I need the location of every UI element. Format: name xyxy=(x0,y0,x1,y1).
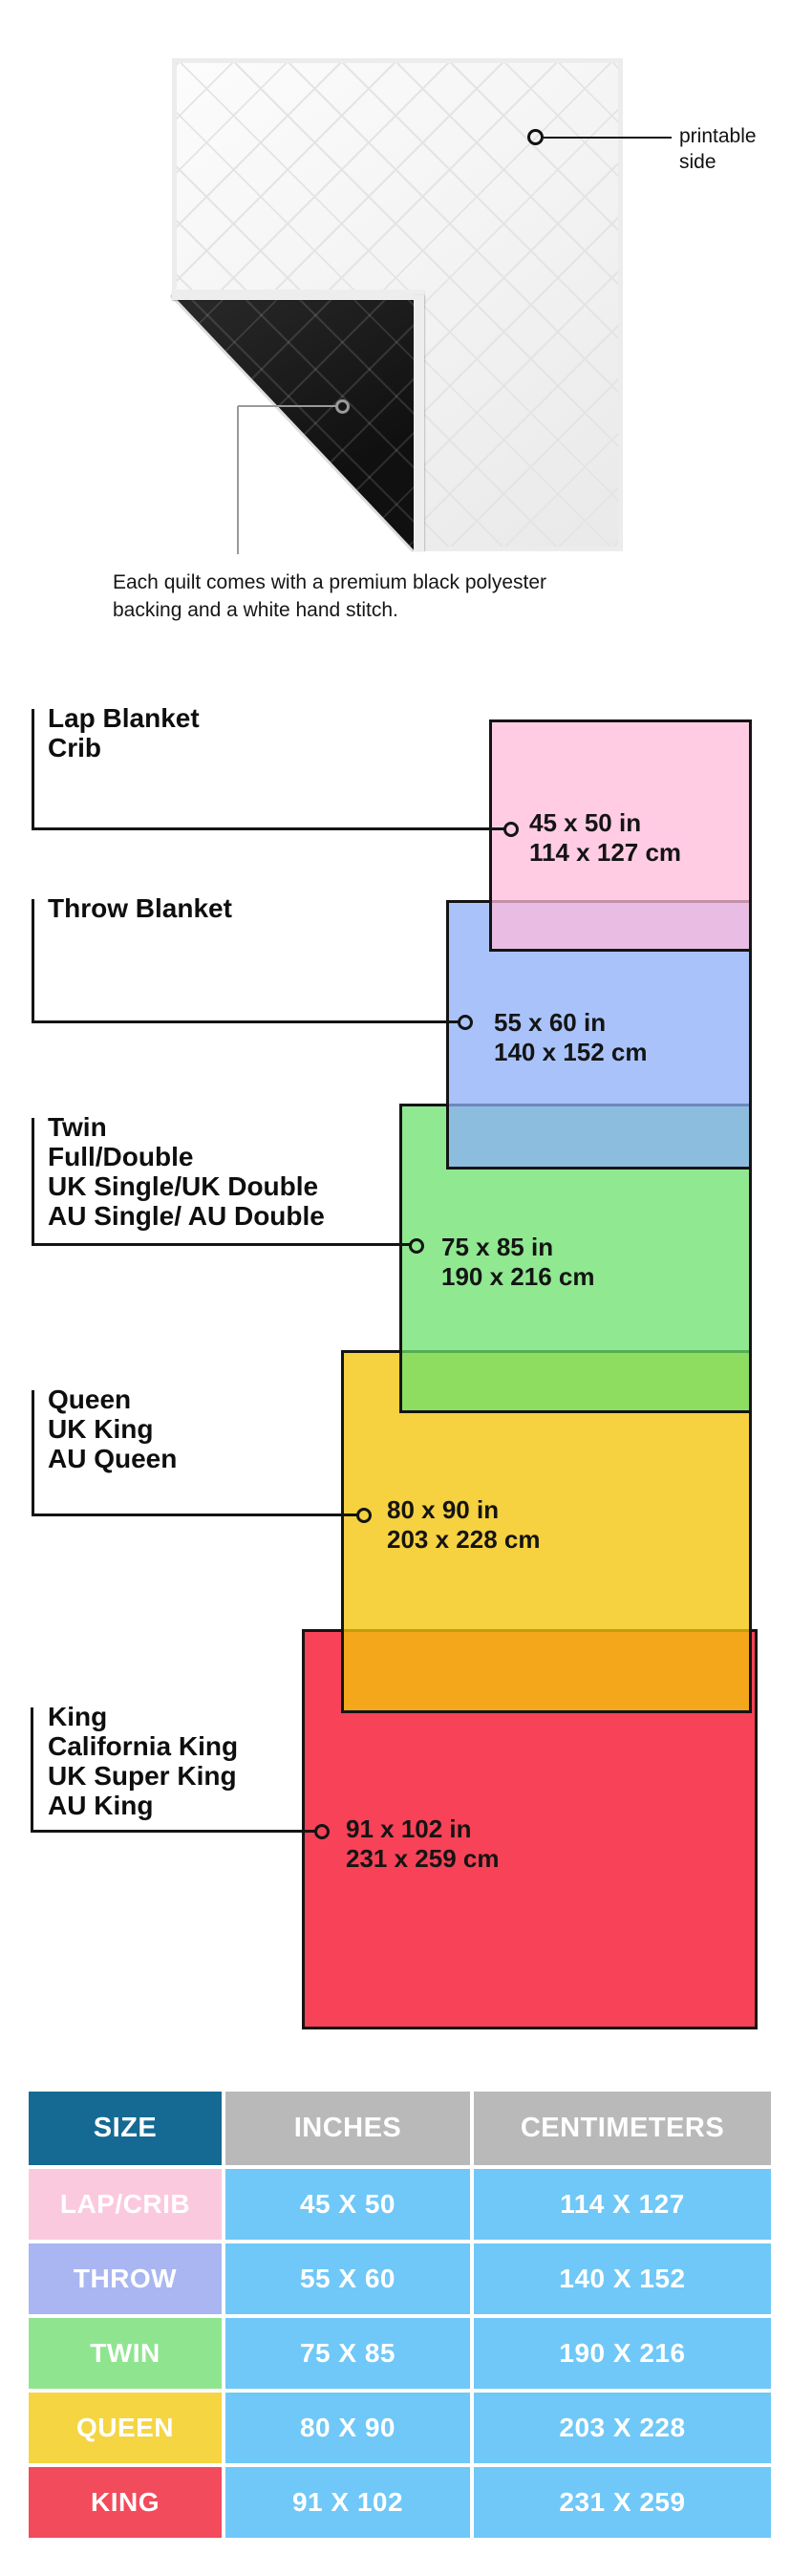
table-row-throw-cm: 140 X 152 xyxy=(474,2243,771,2314)
leader-throw-vertical xyxy=(32,899,34,1022)
leader-king-horizontal xyxy=(31,1830,315,1833)
table-row-lap-cm: 114 X 127 xyxy=(474,2169,771,2240)
quilt-binding-horizontal xyxy=(172,290,424,300)
dims-king: 91 x 102 in 231 x 259 cm xyxy=(346,1814,499,1874)
table-row-queen-size: QUEEN xyxy=(29,2393,222,2463)
table-row-queen-cm: 203 X 228 xyxy=(474,2393,771,2463)
printable-side-marker-icon xyxy=(527,129,544,145)
leader-queen-vertical xyxy=(32,1390,34,1515)
marker-twin-icon xyxy=(409,1238,424,1254)
backing-leader-line-horizontal xyxy=(238,405,336,407)
table-row-throw-inches: 55 X 60 xyxy=(225,2243,470,2314)
label-lap-crib: Lap Blanket Crib xyxy=(48,703,200,762)
marker-lap-icon xyxy=(503,822,519,837)
dims-king-inches: 91 x 102 in xyxy=(346,1814,499,1844)
quilt-binding-vertical xyxy=(414,295,424,551)
printable-side-label: printable side xyxy=(679,123,779,175)
label-throw: Throw Blanket xyxy=(48,893,232,923)
quilt-size-infographic: printable side Each quilt comes with a p… xyxy=(0,0,791,2576)
leader-lap-vertical xyxy=(32,709,34,830)
size-table: SIZE INCHES CENTIMETERS LAP/CRIB 45 X 50… xyxy=(29,2092,771,2538)
marker-king-icon xyxy=(314,1824,330,1839)
table-header-inches: INCHES xyxy=(225,2092,470,2165)
dims-lap-inches: 45 x 50 in xyxy=(529,808,681,838)
dims-throw-cm: 140 x 152 cm xyxy=(494,1038,647,1067)
backing-leader-line-vertical xyxy=(237,406,239,554)
table-row-lap-inches: 45 X 50 xyxy=(225,2169,470,2240)
table-row-lap-size: LAP/CRIB xyxy=(29,2169,222,2240)
dims-king-cm: 231 x 259 cm xyxy=(346,1844,499,1874)
dims-twin: 75 x 85 in 190 x 216 cm xyxy=(441,1233,594,1292)
table-header-centimeters: CENTIMETERS xyxy=(474,2092,771,2165)
label-twin: Twin Full/Double UK Single/UK Double AU … xyxy=(48,1112,325,1231)
table-row-throw-size: THROW xyxy=(29,2243,222,2314)
backing-caption: Each quilt comes with a premium black po… xyxy=(113,569,546,624)
dims-throw: 55 x 60 in 140 x 152 cm xyxy=(494,1008,647,1067)
dims-twin-cm: 190 x 216 cm xyxy=(441,1262,594,1292)
dims-lap: 45 x 50 in 114 x 127 cm xyxy=(529,808,681,868)
table-row-king-size: KING xyxy=(29,2467,222,2538)
table-row-queen-inches: 80 X 90 xyxy=(225,2393,470,2463)
table-header-size: SIZE xyxy=(29,2092,222,2165)
label-king: King California King UK Super King AU Ki… xyxy=(48,1702,238,1820)
dims-throw-inches: 55 x 60 in xyxy=(494,1008,647,1038)
dims-queen-inches: 80 x 90 in xyxy=(387,1495,540,1525)
table-row-twin-inches: 75 X 85 xyxy=(225,2318,470,2389)
leader-twin-vertical xyxy=(32,1118,34,1245)
table-row-king-cm: 231 X 259 xyxy=(474,2467,771,2538)
leader-king-vertical xyxy=(31,1707,33,1832)
dims-queen-cm: 203 x 228 cm xyxy=(387,1525,540,1555)
printable-side-leader-line xyxy=(544,137,672,139)
marker-throw-icon xyxy=(458,1015,473,1030)
table-row-king-inches: 91 X 102 xyxy=(225,2467,470,2538)
table-row-twin-size: TWIN xyxy=(29,2318,222,2389)
backing-marker-icon xyxy=(335,399,350,414)
dims-twin-inches: 75 x 85 in xyxy=(441,1233,594,1262)
table-row-twin-cm: 190 X 216 xyxy=(474,2318,771,2389)
label-queen: Queen UK King AU Queen xyxy=(48,1385,177,1473)
dims-lap-cm: 114 x 127 cm xyxy=(529,838,681,868)
leader-twin-horizontal xyxy=(32,1243,410,1246)
marker-queen-icon xyxy=(356,1508,372,1523)
leader-queen-horizontal xyxy=(32,1513,357,1516)
dims-queen: 80 x 90 in 203 x 228 cm xyxy=(387,1495,540,1555)
leader-lap-horizontal xyxy=(32,827,504,830)
leader-throw-horizontal xyxy=(32,1020,459,1023)
